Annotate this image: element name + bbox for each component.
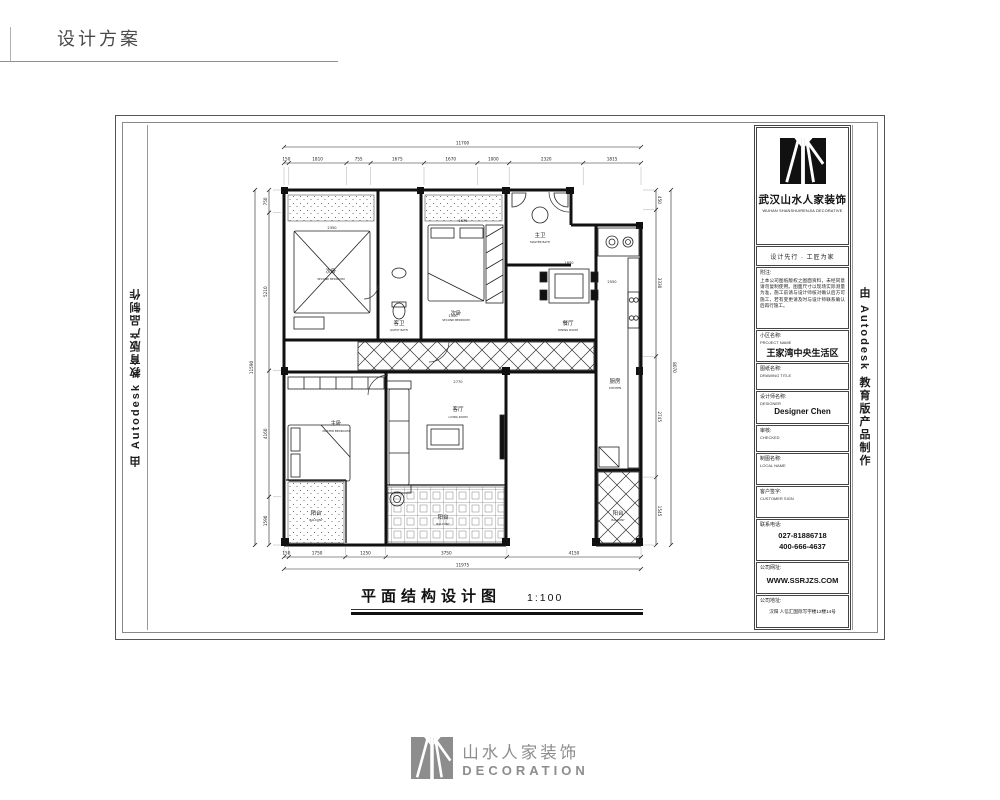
autodesk-watermark-right: 由 Autodesk 教育版产品制作 — [852, 125, 875, 630]
caption-underline-thick — [351, 612, 643, 615]
dim-label: 11590 — [249, 361, 254, 375]
master-bath-fixtures — [512, 193, 568, 223]
draftsman-cell: 制图名称: LOCAL NAME — [756, 453, 849, 485]
dim-label: 1250 — [360, 551, 371, 556]
balcony-hatch-zones — [288, 195, 639, 543]
room-label-en: SECOND BEDROOM — [317, 277, 345, 281]
address-cell: 公司地址: 汉阳 人信汇国际写字楼12楼14号 — [756, 595, 849, 628]
project-value: 王家湾中央生活区 — [760, 346, 845, 359]
dim-label: 2745 — [657, 411, 662, 422]
room-label-cn: 客卫 — [393, 319, 405, 327]
dim-chain-left: 750 5210 4160 1590 11590 — [249, 188, 281, 547]
address-label: 公司地址: — [760, 598, 845, 605]
dim-label: 4150 — [569, 551, 580, 556]
title-block: 武汉山水人家装饰 WUHAN SHANSHUIRENJIA DECORATIVE… — [754, 125, 851, 630]
dim-label: 2320 — [541, 157, 552, 162]
header-accent-line — [10, 27, 11, 62]
footer-brand-cn: 山水人家装饰 — [462, 739, 588, 763]
company-slogan: 设计先行 · 工匠为家 — [756, 246, 849, 266]
room-label-cn: 次卧 — [325, 267, 337, 275]
room-label-en: BALCONY — [309, 518, 323, 522]
notes-cell: 附注: 上本公司图纸版权之图面资料，未经同意请勿复制使用。图面尺寸以现场实际测量… — [756, 267, 849, 329]
footer-logo-icon — [411, 737, 453, 779]
dining-table — [540, 269, 598, 303]
designer-value: Designer Chen — [760, 407, 845, 416]
kitchen-fixtures — [598, 228, 639, 468]
bed-top-mid — [428, 225, 503, 303]
room-label-cn: 主卧 — [330, 419, 342, 427]
telephone-cell: 联系电话: 027-81886718 400-666-4637 — [756, 519, 849, 561]
customer-sign-sublabel: CUSTOMER SIGN — [760, 496, 845, 501]
room-label-cn: 厨房 — [609, 377, 621, 385]
autodesk-watermark-left: 由 Autodesk 教育版产品制作 — [125, 125, 148, 630]
caption-underline-thin — [351, 609, 643, 610]
floorplan-drawing-area: 11700 150 1810 755 1675 1670 1000 2320 1… — [149, 125, 753, 630]
balcony-hatch-top-mid — [425, 195, 502, 221]
caption-title: 平面结构设计图 — [361, 585, 501, 606]
customer-sign-cell: 客户签字: CUSTOMER SIGN — [756, 486, 849, 518]
dim-label: 755 — [355, 157, 363, 162]
drawing-sublabel: DRAWING TITLE — [760, 373, 845, 378]
page-title: 设计方案 — [57, 25, 141, 51]
room-label-cn: 餐厅 — [562, 319, 574, 327]
notes-label: 附注: — [760, 270, 845, 277]
room-label-cn: 阳台 — [437, 513, 449, 521]
notes-text: 上本公司图纸版权之图面资料，未经同意请勿复制使用。图面尺寸以现场实际测量为准，施… — [760, 278, 845, 310]
dim-label: 1545 — [657, 506, 662, 517]
dim-label: 1675 — [392, 157, 403, 162]
footer-brand: 山水人家装饰 DECORATION — [0, 737, 1000, 779]
company-logo-cell: 武汉山水人家装饰 WUHAN SHANSHUIRENJIA DECORATIVE — [756, 127, 849, 245]
dim-label: 1750 — [312, 551, 323, 556]
address-value: 汉阳 人信汇国际写字楼12楼14号 — [760, 609, 845, 615]
caption-scale: 1:100 — [527, 592, 563, 604]
dim-label: 2350 — [327, 226, 337, 230]
dim-label: 150 — [282, 157, 290, 162]
dim-label: 1810 — [312, 157, 323, 162]
cad-sheet: 由 Autodesk 教育版产品制作 由 Autodesk 教育版产品制作 — [115, 115, 885, 640]
dim-label: 1850 — [564, 261, 574, 265]
designer-sublabel: DESIGNER — [760, 401, 845, 406]
dim-chain-top: 11700 150 1810 755 1675 1670 1000 2320 1… — [282, 141, 643, 186]
dim-label: 11975 — [456, 563, 470, 568]
dim-label: 2550 — [607, 280, 617, 284]
guest-bath-fixtures — [392, 268, 406, 319]
room-label-en: GUEST BATH — [390, 328, 408, 332]
draftsman-sublabel: LOCAL NAME — [760, 463, 845, 468]
project-sublabel: PROJECT NAME — [760, 340, 845, 345]
dim-label: 5210 — [263, 286, 268, 297]
website-value: WWW.SSRJZS.COM — [760, 576, 845, 585]
telephone-number-1: 027-81886718 — [760, 531, 845, 540]
room-label-cn: 阳台 — [612, 509, 624, 517]
dim-label: 1675 — [458, 219, 467, 223]
designer-cell: 设计师名称: DESIGNER Designer Chen — [756, 391, 849, 424]
dim-label: 11700 — [456, 141, 470, 146]
corridor-diamond-strip — [358, 342, 594, 370]
website-label: 公司网址: — [760, 565, 845, 572]
drawing-title-cell: 图纸名称: DRAWING TITLE — [756, 363, 849, 390]
room-label-en: LIVING ROOM — [448, 415, 468, 419]
dim-label: 4160 — [263, 428, 268, 439]
telephone-label: 联系电话: — [760, 522, 845, 529]
living-room-furniture — [387, 381, 504, 493]
dim-label: 750 — [263, 197, 268, 205]
check-sublabel: CHECKED — [760, 435, 845, 440]
balcony-diamond-right — [598, 472, 639, 543]
dim-label: 2770 — [453, 380, 463, 384]
dim-label: 1815 — [607, 157, 618, 162]
room-label-cn: 次卧 — [450, 309, 462, 317]
dim-label: 1000 — [488, 157, 499, 162]
balcony-hatch-top-left — [288, 195, 374, 221]
dim-label: 3330 — [657, 278, 662, 289]
footer-brand-text: 山水人家装饰 DECORATION — [462, 739, 588, 778]
dim-chain-bottom: 150 1750 1250 3750 4150 11975 — [282, 547, 643, 571]
drawing-caption: 平面结构设计图 1:100 — [351, 585, 643, 615]
room-label-en: MASTER BEDROOM — [322, 429, 350, 433]
room-label-en: BALCONY — [436, 522, 450, 526]
dim-label: 1590 — [263, 515, 268, 526]
company-logo-icon — [780, 138, 826, 184]
header-rule — [0, 61, 338, 62]
room-label-en: KITCHEN — [609, 386, 621, 390]
website-cell: 公司网址: WWW.SSRJZS.COM — [756, 562, 849, 594]
check-cell: 审核: CHECKED — [756, 425, 849, 452]
dim-label: 3750 — [441, 551, 452, 556]
footer-brand-en: DECORATION — [462, 763, 588, 778]
watermark-text: 由 Autodesk 教育版产品制作 — [856, 287, 872, 467]
room-labels: 次卧 SECOND BEDROOM 客卫 GUEST BATH 次卧 SECON… — [309, 231, 625, 526]
room-label-en: SECOND BEDROOM — [442, 318, 470, 322]
dim-chain-right: 450 3330 2745 1545 8070 — [643, 188, 677, 547]
dim-label: 8070 — [672, 362, 677, 373]
company-name-en: WUHAN SHANSHUIRENJIA DECORATIVE — [763, 209, 843, 213]
dim-label: 450 — [657, 196, 662, 204]
room-label-cn: 主卫 — [534, 231, 546, 239]
telephone-number-2: 400-666-4637 — [760, 542, 845, 551]
room-label-en: BALCONY — [611, 518, 625, 522]
dim-label: 150 — [282, 551, 290, 556]
room-label-en: DINING ROOM — [558, 328, 578, 332]
room-label-cn: 客厅 — [452, 405, 464, 413]
watermark-text: 由 Autodesk 教育版产品制作 — [128, 287, 144, 467]
room-label-en: MASTER BATH — [530, 240, 550, 244]
dim-label: 1670 — [445, 157, 456, 162]
room-label-cn: 阳台 — [310, 509, 322, 517]
project-name-cell: 小区名称: PROJECT NAME 王家湾中央生活区 — [756, 330, 849, 362]
company-name-cn: 武汉山水人家装饰 — [759, 192, 847, 207]
floorplan-svg: 11700 150 1810 755 1675 1670 1000 2320 1… — [149, 125, 753, 630]
